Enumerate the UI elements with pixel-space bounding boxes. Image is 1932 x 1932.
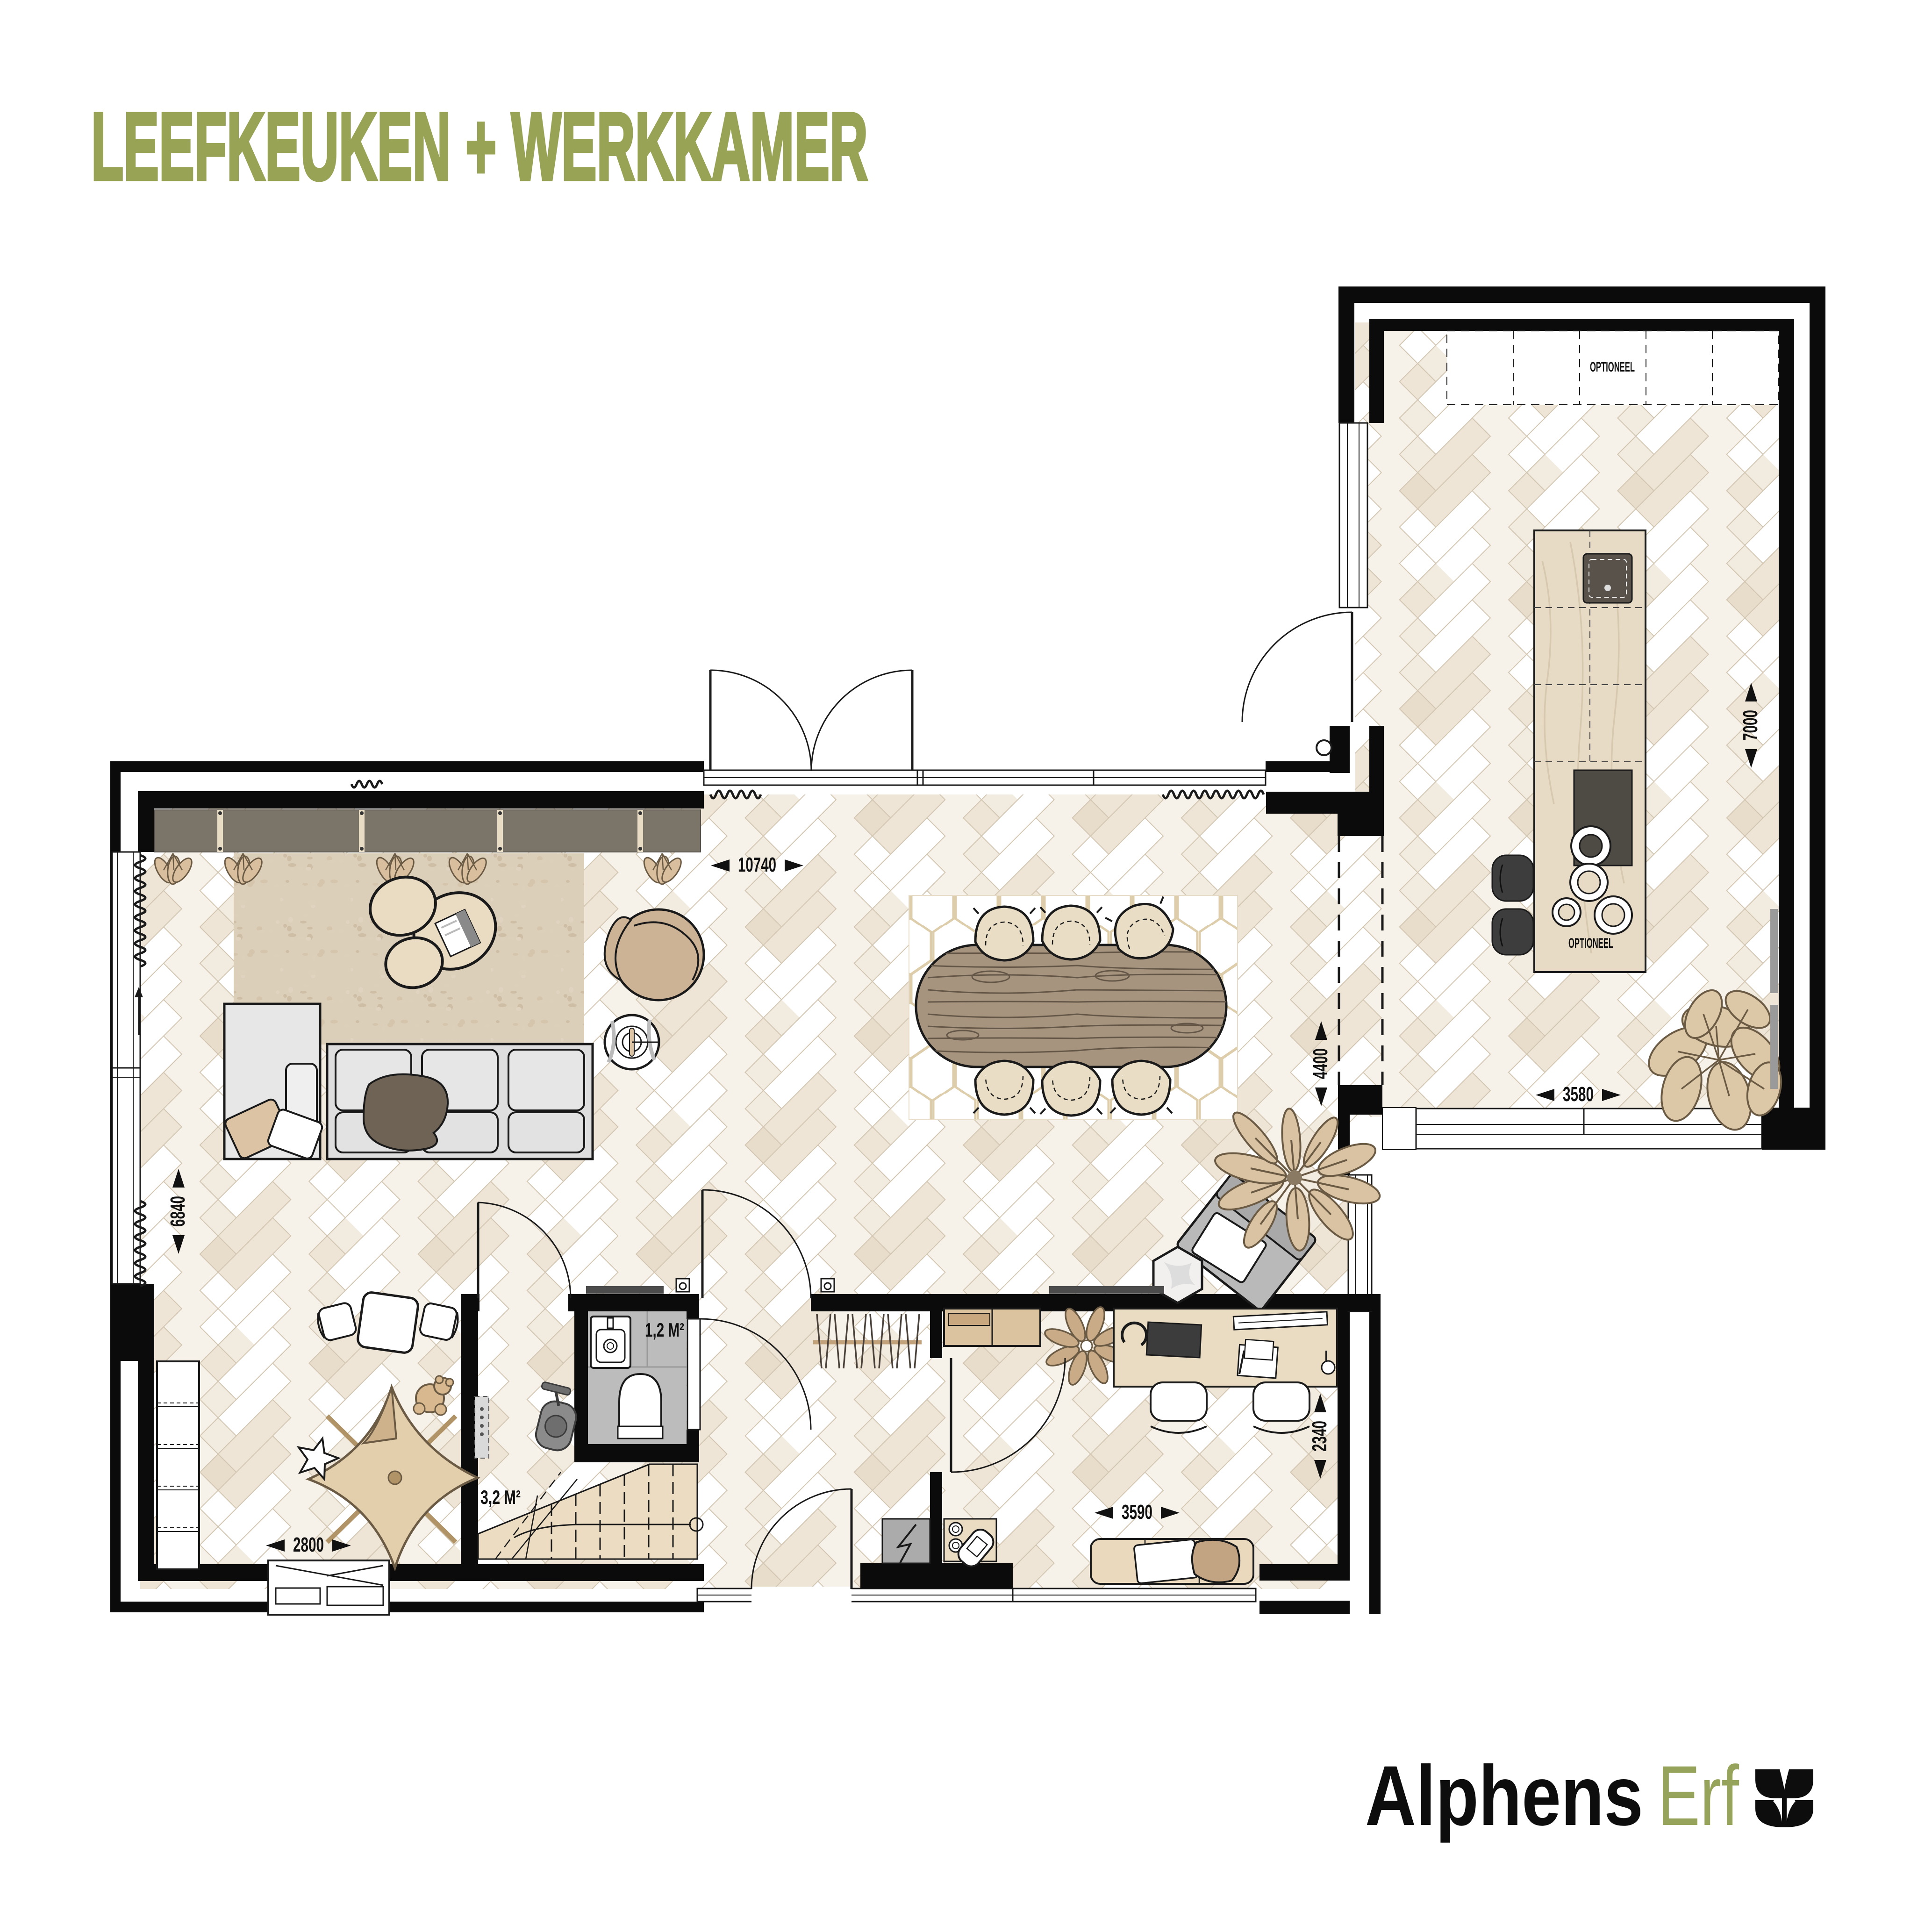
svg-text:OPTIONEEL: OPTIONEEL [1590,359,1635,375]
svg-text:1,2 M²: 1,2 M² [645,1319,684,1341]
svg-text:2800: 2800 [293,1533,324,1556]
svg-text:LEEFKEUKEN + WERKKAMER: LEEFKEUKEN + WERKKAMER [91,93,868,200]
svg-text:4400: 4400 [1309,1048,1332,1079]
svg-text:Erf: Erf [1658,1748,1739,1843]
svg-text:2340: 2340 [1308,1421,1331,1452]
svg-text:3590: 3590 [1122,1501,1152,1524]
svg-text:6840: 6840 [166,1196,189,1227]
svg-text:10740: 10740 [738,853,776,876]
svg-text:3580: 3580 [1563,1083,1594,1106]
svg-text:3,2 M²: 3,2 M² [480,1486,521,1508]
svg-text:7000: 7000 [1739,710,1762,741]
svg-text:Alphens: Alphens [1365,1748,1643,1843]
svg-text:OPTIONEEL: OPTIONEEL [1568,936,1613,951]
